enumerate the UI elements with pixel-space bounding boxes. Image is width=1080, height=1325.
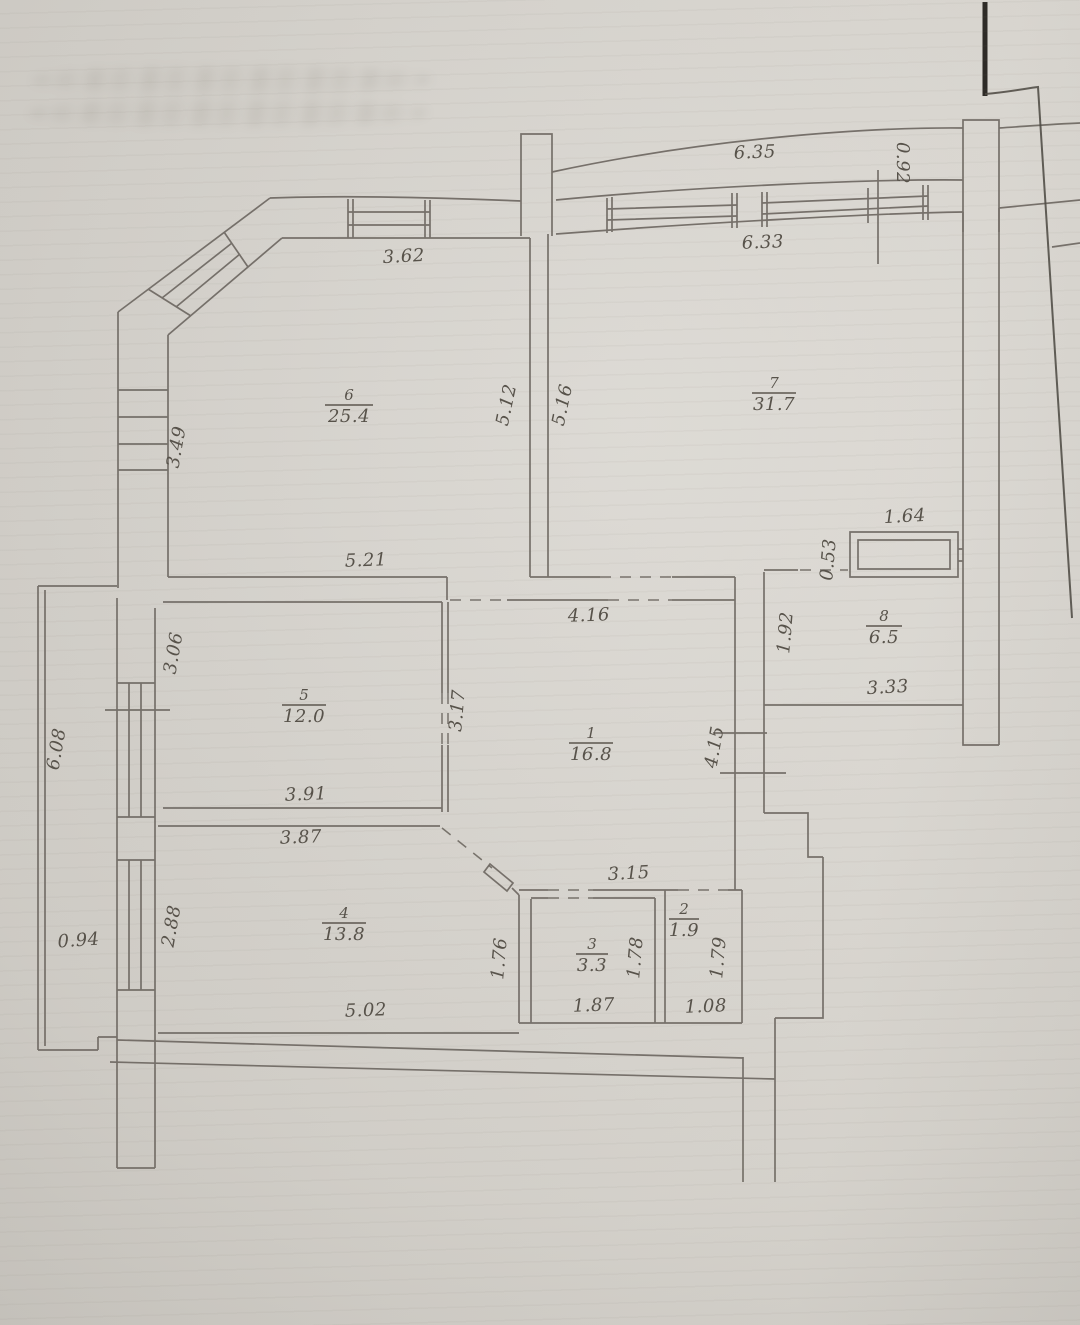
dim-top-balcony-width: 6.35 <box>733 141 776 163</box>
dim-room7-left: 5.16 <box>548 382 577 428</box>
dim-room5-bottom: 3.91 <box>284 783 327 805</box>
dim-rooms32-top: 3.15 <box>607 862 650 885</box>
room-area: 13.8 <box>323 924 365 945</box>
dim-balcony-depth: 0.92 <box>892 142 913 184</box>
room-number: 6 <box>344 386 354 404</box>
room-label-2: 2 1.9 <box>669 900 699 941</box>
room-area: 1.9 <box>669 920 699 941</box>
room-number: 8 <box>879 607 889 625</box>
page-edge-line <box>985 87 1072 618</box>
room-label-1: 1 16.8 <box>569 724 613 765</box>
page-edge <box>985 2 1072 618</box>
dim-room6-right: 5.12 <box>492 382 521 428</box>
dim-room5-door: 3.17 <box>445 689 470 733</box>
room-label-7: 7 31.7 <box>752 374 796 415</box>
dim-room6-left: 3.49 <box>163 425 191 470</box>
dim-room6-top: 3.62 <box>382 245 425 268</box>
room6-top-window <box>348 199 430 238</box>
room-area: 16.8 <box>570 744 612 765</box>
room6-chamfer-window <box>148 232 248 316</box>
room-area: 6.5 <box>869 627 899 648</box>
room-number: 2 <box>678 900 689 918</box>
room-area: 3.3 <box>577 955 607 976</box>
room-number: 5 <box>299 686 309 704</box>
room6-left-window <box>118 390 168 470</box>
dimension-labels: 6.35 0.92 6.33 3.62 3.49 5.12 5.16 5.21 … <box>43 141 927 1021</box>
dim-loggia-length: 6.08 <box>43 727 71 772</box>
room-label-3: 3 3.3 <box>576 935 608 976</box>
dim-room4-left: 2.88 <box>157 904 185 950</box>
room-area: 25.4 <box>327 406 370 427</box>
door-leaf <box>484 864 513 891</box>
room-number: 1 <box>586 724 596 742</box>
room-area: 31.7 <box>753 394 795 415</box>
dim-hall-top: 4.16 <box>566 604 610 626</box>
dim-loggia-width: 0.94 <box>57 929 100 953</box>
dim-room7-top: 6.33 <box>741 231 784 253</box>
dim-room4-top: 3.87 <box>279 826 322 848</box>
dim-room4-right: 1.76 <box>487 937 512 981</box>
dim-room3-bottom: 1.87 <box>572 994 615 1016</box>
floor-plan-drawing: 6 25.4 7 31.7 8 6.5 5 12.0 1 <box>0 0 1080 1325</box>
dim-room4-bottom: 5.02 <box>344 999 387 1021</box>
room-number: 3 <box>587 935 597 953</box>
dim-room2-bottom: 1.08 <box>684 995 727 1017</box>
room-label-4: 4 13.8 <box>322 904 366 945</box>
room-label-5: 5 12.0 <box>282 686 326 727</box>
room-labels: 6 25.4 7 31.7 8 6.5 5 12.0 1 <box>282 374 902 976</box>
dim-room3-right: 1.78 <box>623 936 648 980</box>
room-area: 12.0 <box>283 706 325 727</box>
dim-room8-opening: 0.53 <box>816 538 841 582</box>
scanned-page: 6 25.4 7 31.7 8 6.5 5 12.0 1 <box>0 0 1080 1325</box>
room-number: 4 <box>338 904 349 922</box>
dim-room2-right: 1.79 <box>706 936 731 980</box>
dim-hall-right: 4.15 <box>700 725 728 771</box>
dim-room8-bottom: 3.33 <box>866 676 909 699</box>
room-label-6: 6 25.4 <box>325 386 373 427</box>
dim-closet-width: 1.64 <box>883 505 926 528</box>
dim-room8-left: 1.92 <box>773 611 798 655</box>
room-number: 7 <box>769 374 779 392</box>
dim-room6-bottom: 5.21 <box>344 549 387 571</box>
dim-room5-left: 3.06 <box>160 631 188 676</box>
walls-solid <box>38 120 1080 1182</box>
room-label-8: 8 6.5 <box>866 607 902 648</box>
